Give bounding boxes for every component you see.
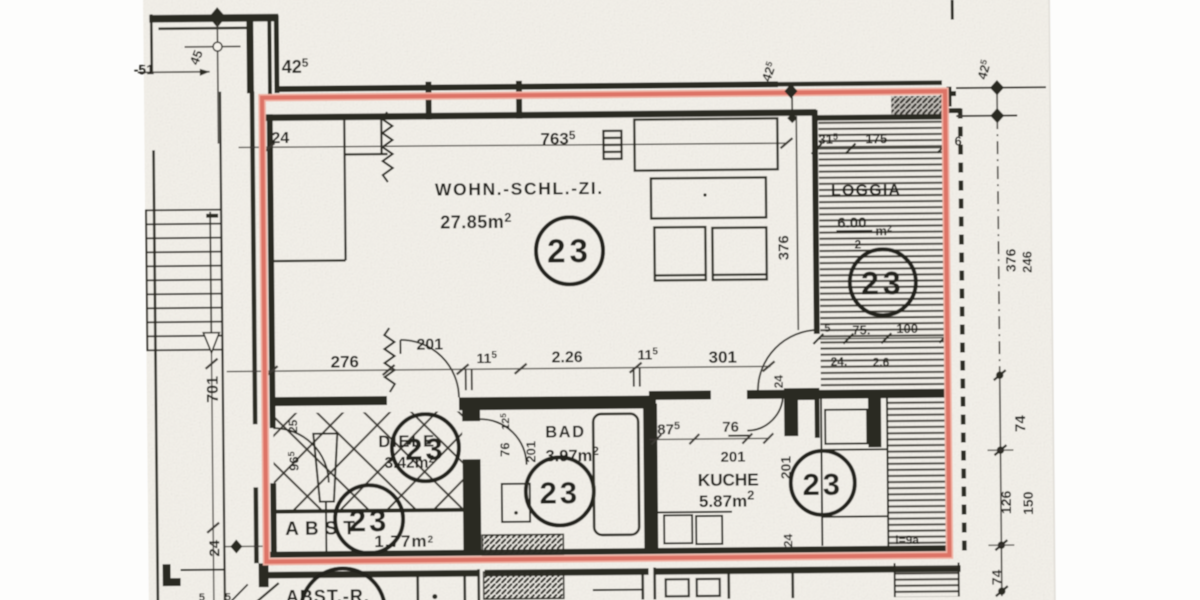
svg-text:201: 201: [523, 441, 538, 463]
svg-text:24.: 24.: [831, 355, 848, 369]
svg-text:5.87m2: 5.87m2: [699, 488, 755, 512]
svg-text:WOHN.-SCHL.-ZI.: WOHN.-SCHL.-ZI.: [435, 178, 604, 200]
svg-text:2.6: 2.6: [873, 355, 890, 369]
svg-text:24: 24: [781, 533, 795, 547]
svg-text:100: 100: [896, 321, 918, 336]
svg-text:276: 276: [330, 352, 359, 371]
svg-text:5: 5: [824, 323, 830, 335]
svg-text:376: 376: [1003, 248, 1019, 272]
svg-text:701: 701: [205, 376, 222, 403]
svg-text:74: 74: [1012, 415, 1029, 433]
svg-text:l=9a: l=9a: [895, 533, 919, 547]
svg-text:6.00: 6.00: [837, 214, 866, 231]
svg-text:201: 201: [416, 337, 443, 354]
svg-text:3.97m2: 3.97m2: [545, 444, 599, 466]
svg-text:5: 5: [225, 592, 231, 600]
svg-text:175: 175: [865, 131, 887, 146]
svg-text:75.: 75.: [852, 322, 870, 337]
svg-text:-51: -51: [134, 61, 155, 77]
svg-text:25: 25: [286, 419, 300, 433]
svg-text:74: 74: [989, 569, 1005, 585]
svg-text:ABST.-R.: ABST.-R.: [286, 586, 370, 600]
svg-text:24: 24: [772, 375, 786, 389]
svg-text:24: 24: [271, 130, 289, 147]
svg-text:76: 76: [497, 442, 512, 457]
svg-text:246: 246: [1020, 251, 1035, 273]
svg-text:27.85m2: 27.85m2: [440, 210, 512, 233]
svg-text:23: 23: [861, 265, 905, 301]
svg-text:201: 201: [720, 449, 745, 466]
svg-text:23: 23: [405, 431, 446, 466]
svg-text:301: 301: [708, 348, 737, 367]
svg-text:2: 2: [854, 237, 861, 251]
svg-text:2.26: 2.26: [551, 349, 582, 366]
svg-text:5: 5: [199, 592, 205, 600]
svg-text:376: 376: [775, 235, 792, 260]
svg-text:126: 126: [998, 490, 1014, 514]
svg-text:23: 23: [539, 475, 580, 510]
svg-text:150: 150: [1020, 491, 1036, 515]
svg-text:23: 23: [547, 232, 592, 269]
svg-text:23: 23: [349, 503, 390, 538]
svg-text:76: 76: [722, 419, 739, 436]
svg-text:24: 24: [206, 539, 223, 557]
svg-text:BAD: BAD: [545, 423, 585, 441]
svg-text:LOGGIA: LOGGIA: [831, 182, 901, 200]
